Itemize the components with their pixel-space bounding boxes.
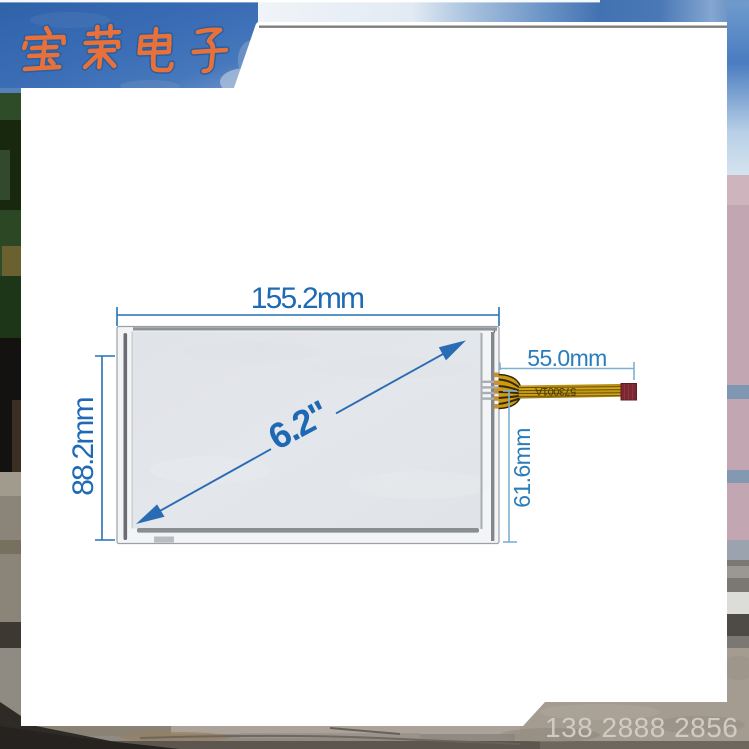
- svg-text:88.2mm: 88.2mm: [67, 397, 100, 495]
- svg-text:573001A: 573001A: [535, 385, 577, 397]
- svg-text:155.2mm: 155.2mm: [251, 282, 364, 315]
- svg-text:61.6mm: 61.6mm: [509, 428, 535, 507]
- svg-text:55.0mm: 55.0mm: [527, 345, 606, 371]
- svg-text:138 2888 2856: 138 2888 2856: [545, 712, 738, 743]
